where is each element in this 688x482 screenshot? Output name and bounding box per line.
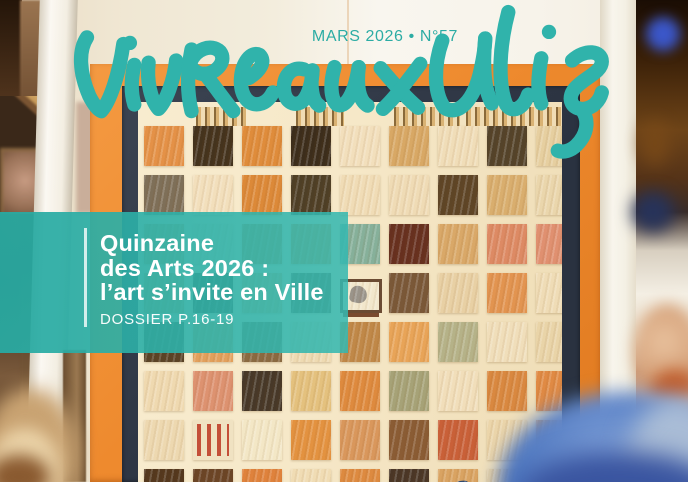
mosaic-tile	[144, 371, 184, 411]
mosaic-tile	[242, 175, 282, 215]
magazine-cover: MARS 2026 • N°57 Vivre aux Ulis Vivre au…	[0, 0, 688, 482]
mosaic-tile	[389, 420, 429, 460]
headline-line1: Quinzaine	[100, 231, 324, 256]
mosaic-tile	[291, 175, 331, 215]
mosaic-tile	[487, 175, 527, 215]
headline-overlay: Quinzaine des Arts 2026 : l’art s’invite…	[0, 212, 348, 353]
mosaic-tile	[487, 371, 527, 411]
headline-kicker: DOSSIER P.16-19	[100, 312, 324, 327]
headline-line2: des Arts 2026 :	[100, 256, 324, 281]
mosaic-tile	[389, 224, 429, 264]
mosaic-tile	[193, 469, 233, 482]
mosaic-tile	[340, 175, 380, 215]
mosaic-tile	[144, 469, 184, 482]
mosaic-tile	[536, 224, 562, 264]
mosaic-tile	[291, 420, 331, 460]
mosaic-tile	[487, 224, 527, 264]
mosaic-tile	[536, 273, 562, 313]
headline-line3: l’art s’invite en Ville	[100, 280, 324, 305]
mosaic-tile	[487, 273, 527, 313]
mosaic-tile	[193, 371, 233, 411]
mosaic-tile	[389, 175, 429, 215]
mosaic-tile	[144, 175, 184, 215]
mosaic-tile	[438, 322, 478, 362]
mosaic-tile	[340, 469, 380, 482]
mosaic-tile	[389, 371, 429, 411]
mosaic-tile	[389, 469, 429, 482]
mosaic-tile	[291, 469, 331, 482]
mosaic-tile	[340, 420, 380, 460]
mosaic-tile	[242, 371, 282, 411]
mosaic-tile	[389, 273, 429, 313]
mosaic-tile	[438, 420, 478, 460]
mosaic-tile	[536, 371, 562, 411]
magazine-logo-script: Vivre aux Ulis	[64, 0, 688, 176]
mosaic-tile	[193, 420, 233, 460]
mosaic-tile	[242, 420, 282, 460]
mosaic-tile	[193, 175, 233, 215]
mosaic-tile	[438, 273, 478, 313]
mosaic-tile	[340, 371, 380, 411]
mosaic-tile	[438, 175, 478, 215]
mosaic-tile	[144, 420, 184, 460]
mosaic-tile	[536, 175, 562, 215]
mosaic-tile	[438, 371, 478, 411]
navy-bokeh-light	[632, 192, 674, 232]
mosaic-tile	[291, 371, 331, 411]
mosaic-tile	[242, 469, 282, 482]
mosaic-tile	[536, 322, 562, 362]
mosaic-tile	[438, 469, 478, 482]
headline-block: Quinzaine des Arts 2026 : l’art s’invite…	[100, 231, 324, 327]
headline-accent-bar	[84, 228, 87, 327]
mosaic-tile	[389, 322, 429, 362]
mosaic-tile	[487, 322, 527, 362]
mosaic-tile	[438, 224, 478, 264]
